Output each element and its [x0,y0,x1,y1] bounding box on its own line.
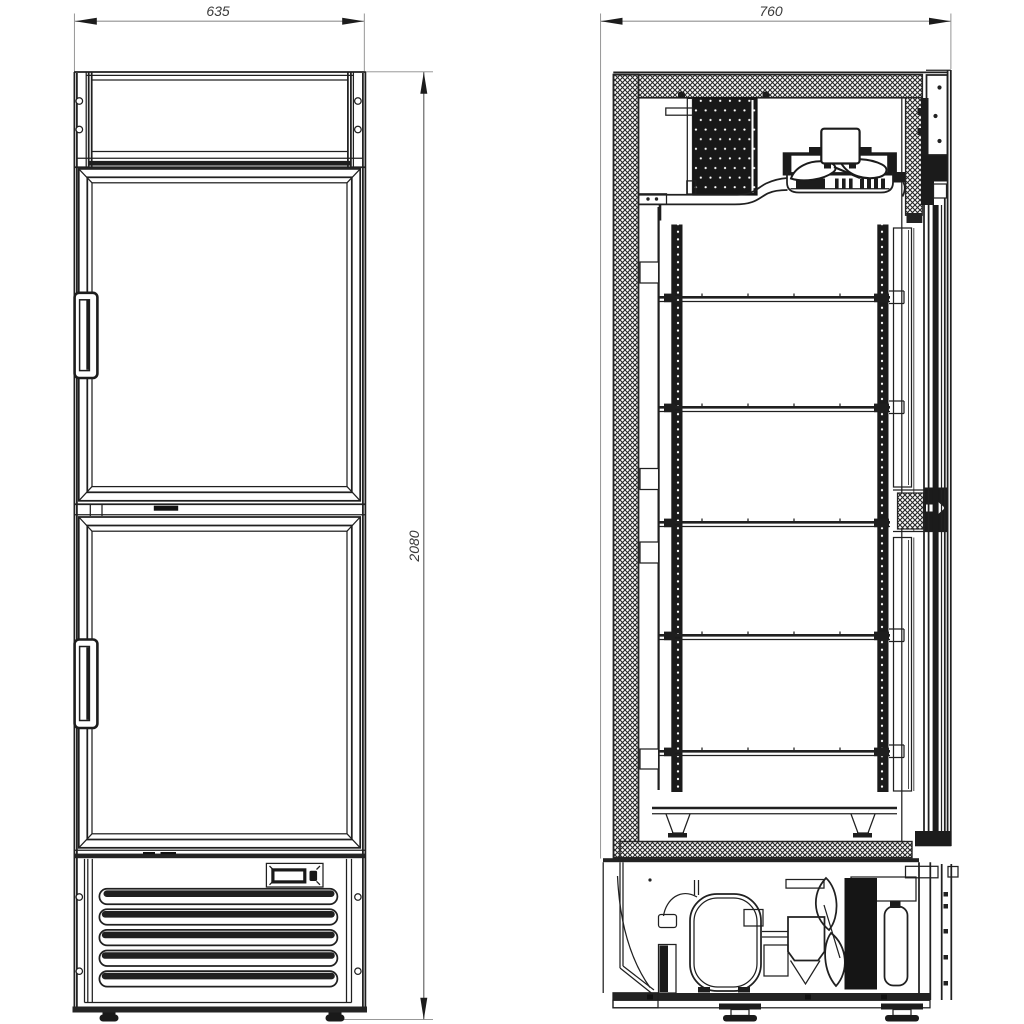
svg-text:2080: 2080 [406,530,422,562]
svg-text:635: 635 [206,3,230,19]
svg-text:760: 760 [759,3,783,19]
